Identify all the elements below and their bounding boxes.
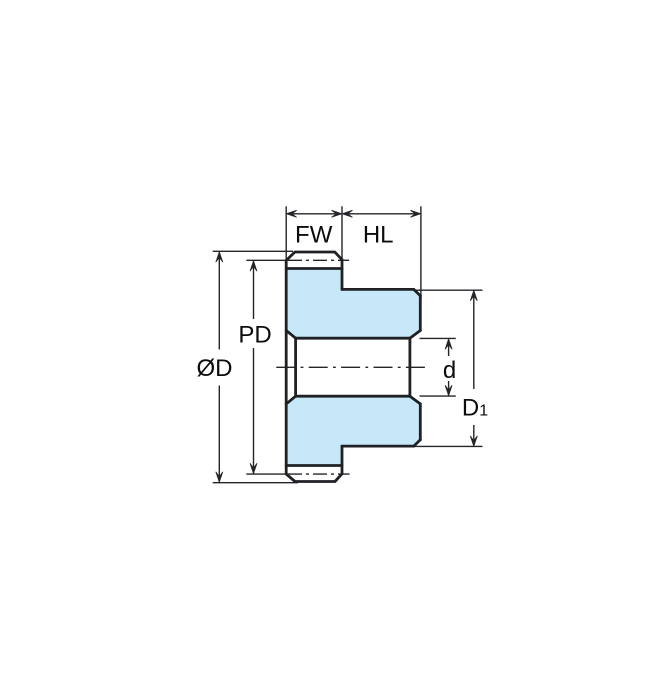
- svg-text:HL: HL: [363, 221, 394, 248]
- svg-text:d: d: [443, 357, 456, 384]
- svg-text:PD: PD: [238, 321, 271, 348]
- svg-text:ØD: ØD: [197, 355, 233, 382]
- svg-text:FW: FW: [295, 221, 333, 248]
